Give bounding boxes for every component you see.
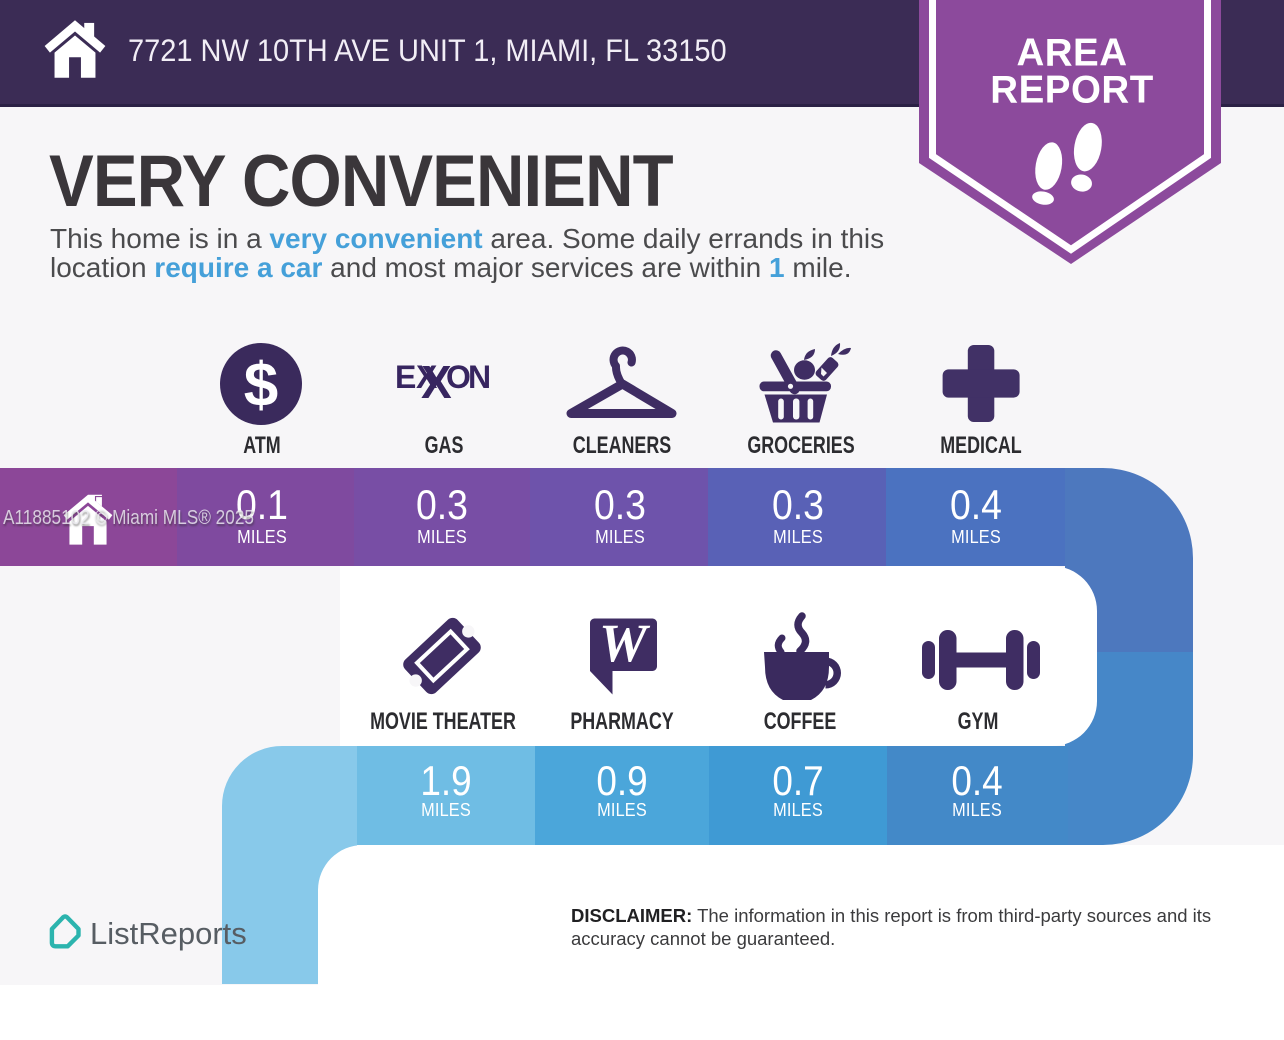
svg-text:E: E: [395, 359, 416, 395]
svg-text:$: $: [244, 351, 278, 420]
svg-text:W: W: [599, 613, 651, 673]
svg-text:REPORT: REPORT: [990, 69, 1153, 112]
svg-text:N: N: [468, 359, 491, 395]
